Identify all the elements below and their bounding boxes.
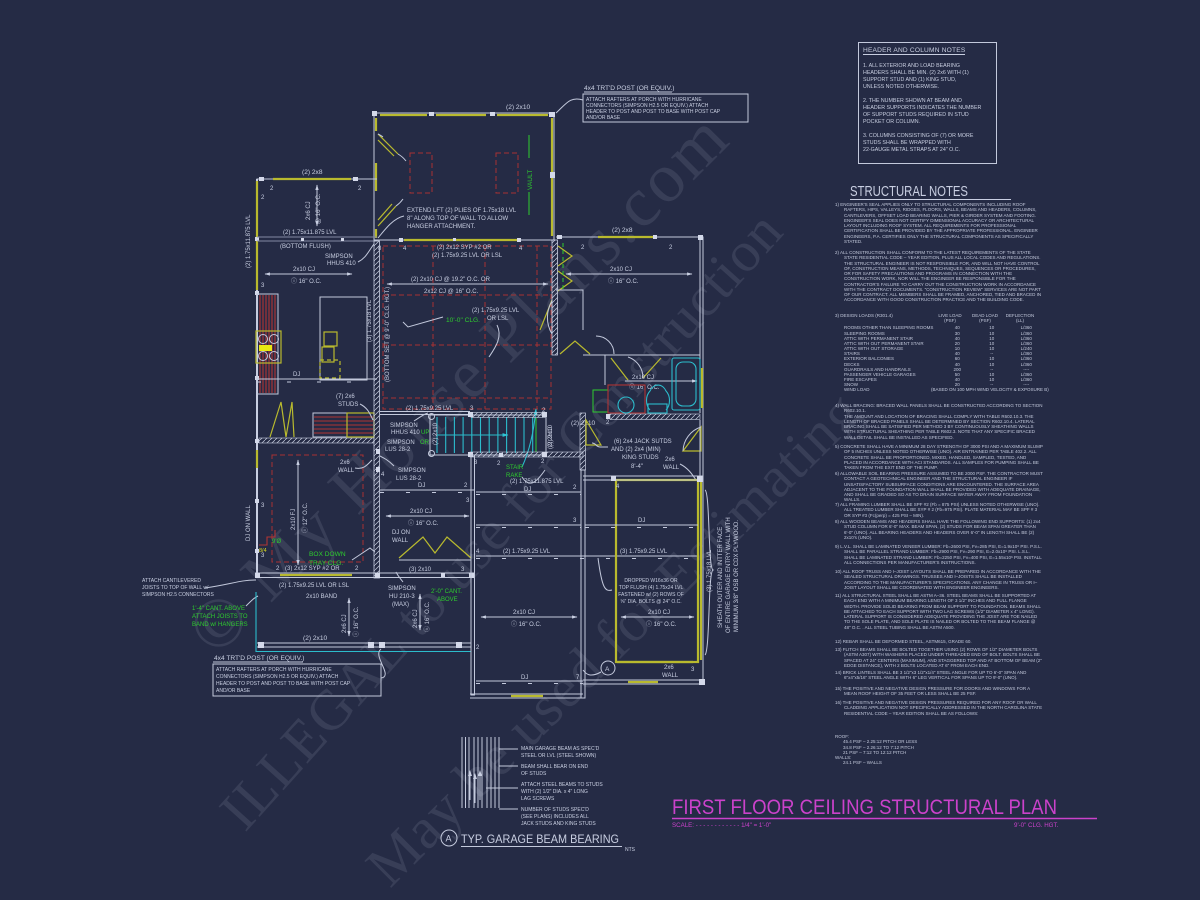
- svg-text:3: 3: [573, 518, 577, 524]
- svg-text:ⓘ 16" O.C.: ⓘ 16" O.C.: [646, 620, 677, 628]
- svg-text:3: 3: [691, 667, 695, 673]
- svg-text:2x10 CJ: 2x10 CJ: [610, 267, 632, 273]
- svg-text:(BOTTOM SET @ 9'-0" CLG. HGT.): (BOTTOM SET @ 9'-0" CLG. HGT.): [385, 287, 391, 382]
- svg-text:9'Ø: 9'Ø: [272, 539, 281, 545]
- svg-text:WITH (2) 1/2" DIA. x 4" LONG: WITH (2) 1/2" DIA. x 4" LONG: [521, 789, 588, 795]
- svg-text:HHUS 410: HHUS 410: [391, 430, 420, 436]
- svg-text:ⓘ 16" O.C.: ⓘ 16" O.C.: [608, 277, 639, 285]
- svg-text:(2) 2x10: (2) 2x10: [433, 422, 439, 445]
- svg-text:SHEATH OUTER AND INTTER FACE: SHEATH OUTER AND INTTER FACE: [718, 527, 724, 628]
- svg-text:ATTACH STEEL BEAMS TO STUDS: ATTACH STEEL BEAMS TO STUDS: [521, 782, 603, 788]
- svg-text:AND/OR BASE: AND/OR BASE: [586, 115, 621, 121]
- svg-text:SCALE: - - - - - - - - - - - -: SCALE: - - - - - - - - - - - - 1/4" = 1'…: [672, 822, 771, 829]
- svg-text:(3) 1.75x9.25 LVL: (3) 1.75x9.25 LVL: [620, 549, 668, 555]
- svg-text:DJ ON: DJ ON: [392, 530, 410, 536]
- svg-text:LUS 28-2: LUS 28-2: [385, 447, 411, 453]
- svg-text:OF ENTIRE GARAGE ENTRY WALL WI: OF ENTIRE GARAGE ENTRY WALL WITH: [726, 517, 732, 633]
- svg-text:2x10 CJ: 2x10 CJ: [632, 375, 654, 381]
- svg-text:8'-4": 8'-4": [631, 464, 643, 470]
- svg-text:WALL: WALL: [338, 468, 355, 474]
- svg-text:BEAM SHALL BEAR ON END: BEAM SHALL BEAR ON END: [521, 764, 588, 770]
- svg-text:STAIR: STAIR: [506, 465, 524, 471]
- svg-text:ABOVE: ABOVE: [437, 597, 458, 603]
- svg-text:(3) 2x10: (3) 2x10: [409, 567, 432, 573]
- svg-text:2: 2: [358, 186, 362, 192]
- svg-text:SIMPSON: SIMPSON: [325, 254, 353, 260]
- svg-text:2x12 CJ @ 16" O.C.: 2x12 CJ @ 16" O.C.: [424, 289, 479, 295]
- svg-text:2: 2: [497, 461, 501, 467]
- svg-text:(2) 2x10 CJ @ 19.2" O.C. OR: (2) 2x10 CJ @ 19.2" O.C. OR: [411, 277, 491, 283]
- svg-text:2x10 CJ: 2x10 CJ: [410, 509, 432, 515]
- svg-text:3: 3: [261, 283, 265, 289]
- svg-text:TYP. GARAGE BEAM BEARING: TYP. GARAGE BEAM BEARING: [461, 832, 619, 846]
- svg-text:(BOTTOM FLUSH): (BOTTOM FLUSH): [280, 244, 331, 250]
- svg-text:⅝" DIA. BOLTS @ 24" O.C.: ⅝" DIA. BOLTS @ 24" O.C.: [620, 599, 681, 605]
- svg-text:DJ: DJ: [638, 518, 645, 524]
- svg-text:EXTEND LFT (2) PLIES OF 1.75x1: EXTEND LFT (2) PLIES OF 1.75x18 LVL: [407, 208, 517, 214]
- svg-text:4x4 TRT'D POST (OR EQUIV.): 4x4 TRT'D POST (OR EQUIV.): [214, 655, 304, 662]
- svg-text:2: 2: [270, 186, 274, 192]
- svg-text:LAG SCREWS: LAG SCREWS: [521, 796, 555, 802]
- svg-text:TOP FLUSH (4) 1.75x24 LVL: TOP FLUSH (4) 1.75x24 LVL: [619, 585, 684, 591]
- svg-text:ⓘ 16" O.C.: ⓘ 16" O.C.: [511, 620, 542, 628]
- svg-text:4x4 TRT'D POST (OR EQUIV.): 4x4 TRT'D POST (OR EQUIV.): [584, 85, 674, 92]
- svg-text:NTS: NTS: [625, 847, 636, 853]
- svg-text:4: 4: [403, 246, 407, 252]
- svg-text:DROPPED W16x36 OR: DROPPED W16x36 OR: [624, 578, 678, 584]
- svg-text:1'-4" CANT. ABOVE: 1'-4" CANT. ABOVE: [192, 606, 245, 612]
- svg-text:(3) 2x12 SYP #2 OR: (3) 2x12 SYP #2 OR: [285, 566, 340, 572]
- svg-text:2x6 CJ: 2x6 CJ: [306, 201, 312, 220]
- svg-text:(2) 2x8: (2) 2x8: [302, 169, 323, 176]
- svg-text:(3) 1.75x18 LVL: (3) 1.75x18 LVL: [707, 549, 713, 592]
- svg-text:(2) 1.75x11.875 LVL: (2) 1.75x11.875 LVL: [510, 479, 564, 485]
- svg-text:(2) 2x12 SYP #2 OR: (2) 2x12 SYP #2 OR: [437, 245, 492, 251]
- svg-text:DJ: DJ: [521, 675, 528, 681]
- svg-text:(2) 1.75x11.875 LVL: (2) 1.75x11.875 LVL: [283, 230, 337, 236]
- svg-text:HEADER TO POST AND POST TO BAS: HEADER TO POST AND POST TO BASE WITH POS…: [216, 681, 351, 687]
- svg-text:BOX DOWN: BOX DOWN: [309, 551, 346, 558]
- svg-text:VAULT: VAULT: [527, 170, 534, 190]
- svg-text:2x10 BAND: 2x10 BAND: [306, 594, 338, 600]
- svg-text:2x6: 2x6: [340, 460, 350, 466]
- svg-text:SIMPSON: SIMPSON: [388, 586, 416, 592]
- svg-text:JOISTS TO TOP OF WALL w/: JOISTS TO TOP OF WALL w/: [142, 585, 209, 591]
- svg-text:(SEE PLANS) INCLUDES ALL: (SEE PLANS) INCLUDES ALL: [521, 814, 589, 820]
- svg-text:DJ: DJ: [293, 372, 300, 378]
- svg-text:2: 2: [669, 245, 673, 251]
- svg-text:NUMBER OF STUDS SPEC'D: NUMBER OF STUDS SPEC'D: [521, 807, 589, 813]
- svg-text:(2) 2x10: (2) 2x10: [571, 420, 596, 427]
- svg-text:BAND w/ HANGERS: BAND w/ HANGERS: [192, 622, 248, 628]
- svg-text:MAIN GARAGE BEAM AS SPEC'D: MAIN GARAGE BEAM AS SPEC'D: [521, 746, 600, 752]
- svg-text:FASTENED w/ (2) ROWS OF: FASTENED w/ (2) ROWS OF: [618, 592, 684, 598]
- svg-text:ATTACH CANTILEVERED: ATTACH CANTILEVERED: [142, 578, 201, 584]
- svg-text:ⓘ 16" O.C.: ⓘ 16" O.C.: [352, 606, 360, 637]
- svg-text:(2) 1.75x11.875 LVL: (2) 1.75x11.875 LVL: [246, 214, 252, 268]
- svg-text:2: 2: [573, 485, 577, 491]
- svg-text:@ 16" O.C.: @ 16" O.C.: [316, 193, 322, 224]
- svg-text:(2) 1.75x9.25 LVL OR LSL: (2) 1.75x9.25 LVL OR LSL: [279, 583, 350, 589]
- svg-text:ATTACH RAFTERS AT PORCH WITH H: ATTACH RAFTERS AT PORCH WITH HURRICANE: [216, 667, 332, 673]
- svg-text:ⓘ 16" O.C.: ⓘ 16" O.C.: [629, 383, 660, 391]
- svg-text:2: 2: [476, 645, 480, 651]
- svg-text:AND/OR BASE: AND/OR BASE: [216, 688, 251, 694]
- svg-text:(2) 1.75x9.25 LVL: (2) 1.75x9.25 LVL: [472, 308, 520, 314]
- svg-text:(6) 2x4 JACK SUTDS: (6) 2x4 JACK SUTDS: [614, 439, 672, 445]
- svg-text:LUS 28-2: LUS 28-2: [396, 476, 422, 482]
- svg-text:SIMPSON: SIMPSON: [398, 468, 426, 474]
- svg-text:AND (2) 2x4 (MIN): AND (2) 2x4 (MIN): [611, 447, 661, 453]
- svg-text:2: 2: [355, 566, 359, 572]
- svg-text:(2) 1.75x9.25 LVL: (2) 1.75x9.25 LVL: [406, 406, 454, 412]
- svg-text:2x6 CJ: 2x6 CJ: [413, 609, 419, 628]
- svg-text:(3) 1.75x18 LVL: (3) 1.75x18 LVL: [367, 299, 373, 342]
- svg-text:10'-0" CLG.: 10'-0" CLG.: [446, 317, 480, 324]
- svg-text:A: A: [446, 834, 452, 844]
- svg-text:2x10 FJ: 2x10 FJ: [291, 509, 297, 530]
- svg-text:STRUCTURAL NOTES: STRUCTURAL NOTES: [850, 183, 968, 200]
- svg-text:WALL: WALL: [392, 538, 409, 544]
- svg-text:SIMPSON: SIMPSON: [387, 440, 415, 446]
- svg-text:(2) 2x8: (2) 2x8: [612, 227, 633, 234]
- svg-text:(MAX): (MAX): [392, 602, 409, 608]
- svg-text:ⓘ 16" O.C.: ⓘ 16" O.C.: [423, 601, 431, 632]
- svg-text:(7) 2x6: (7) 2x6: [336, 394, 355, 400]
- svg-text:OR: OR: [420, 440, 430, 446]
- svg-text:HHUS 410: HHUS 410: [327, 261, 356, 267]
- svg-text:SIMPSON: SIMPSON: [390, 423, 418, 429]
- svg-text:2x6 CJ: 2x6 CJ: [342, 614, 348, 633]
- svg-text:8" ALONG TOP OF WALL TO ALLOW: 8" ALONG TOP OF WALL TO ALLOW: [407, 216, 509, 222]
- svg-text:ⓘ 16" O.C.: ⓘ 16" O.C.: [408, 519, 439, 527]
- svg-text:(2) 2x10: (2) 2x10: [303, 635, 328, 642]
- svg-text:WALL: WALL: [663, 465, 680, 471]
- svg-text:4: 4: [616, 484, 620, 490]
- svg-text:2x10 CJ: 2x10 CJ: [513, 610, 535, 616]
- svg-text:(2) 1.75x9.25 LVL: (2) 1.75x9.25 LVL: [503, 549, 551, 555]
- svg-text:KING STUDS: KING STUDS: [622, 455, 659, 461]
- svg-text:OF STUDS: OF STUDS: [521, 771, 547, 777]
- svg-text:9'-0" CLG. HGT.: 9'-0" CLG. HGT.: [1014, 822, 1059, 829]
- svg-text:STEEL OR LVL (STEEL SHOWN): STEEL OR LVL (STEEL SHOWN): [521, 753, 597, 759]
- svg-text:2: 2: [464, 483, 468, 489]
- svg-text:2x6: 2x6: [664, 665, 674, 671]
- svg-text:2x10 CJ: 2x10 CJ: [293, 267, 315, 273]
- svg-text:3: 3: [466, 498, 470, 504]
- svg-text:MINIMUM 3/8" OSB OR CDX PLYWOO: MINIMUM 3/8" OSB OR CDX PLYWOOD.: [734, 520, 740, 632]
- svg-text:8: 8: [378, 246, 382, 252]
- svg-text:2x10 CJ: 2x10 CJ: [648, 610, 670, 616]
- svg-text:2'-0" CANT.: 2'-0" CANT.: [431, 589, 462, 595]
- svg-text:UP: UP: [421, 430, 429, 436]
- svg-text:FIRST FLOOR CEILING STRUCTURAL: FIRST FLOOR CEILING STRUCTURAL PLAN: [672, 796, 1057, 819]
- svg-text:JACK STUDS AND KING STUDS: JACK STUDS AND KING STUDS: [521, 821, 596, 827]
- svg-text:3: 3: [261, 503, 265, 509]
- svg-text:DJ ON WALL: DJ ON WALL: [246, 505, 252, 541]
- svg-text:2: 2: [261, 195, 265, 201]
- svg-text:2x6: 2x6: [665, 457, 675, 463]
- svg-text:A: A: [605, 666, 610, 673]
- svg-text:(2) 2x10: (2) 2x10: [506, 104, 531, 111]
- svg-text:ATTACH JOISTS TO: ATTACH JOISTS TO: [192, 614, 248, 620]
- svg-text:ⓘ 16" O.C.: ⓘ 16" O.C.: [291, 277, 322, 285]
- svg-text:DJ: DJ: [418, 483, 425, 489]
- svg-text:4: 4: [519, 246, 523, 252]
- svg-text:HU 210-3: HU 210-3: [389, 594, 415, 600]
- svg-text:HANGER ATTACHMENT.: HANGER ATTACHMENT.: [407, 224, 475, 230]
- svg-text:STUDS: STUDS: [338, 402, 358, 408]
- svg-text:WALL: WALL: [662, 673, 679, 679]
- svg-text:SIMPSON H2.5 CONNECTORS: SIMPSON H2.5 CONNECTORS: [142, 592, 215, 598]
- svg-text:CONNECTORS (SIMPSON H2.5 OR EQ: CONNECTORS (SIMPSON H2.5 OR EQUIV.) ATTA…: [216, 674, 339, 680]
- svg-text:ⓘ 12" O.C.: ⓘ 12" O.C.: [301, 502, 309, 533]
- svg-text:OR LSL: OR LSL: [487, 316, 509, 322]
- svg-text:(2) 2x10: (2) 2x10: [548, 426, 554, 449]
- svg-text:(2) 1.75x9.25 LVL OR LSL: (2) 1.75x9.25 LVL OR LSL: [432, 253, 503, 259]
